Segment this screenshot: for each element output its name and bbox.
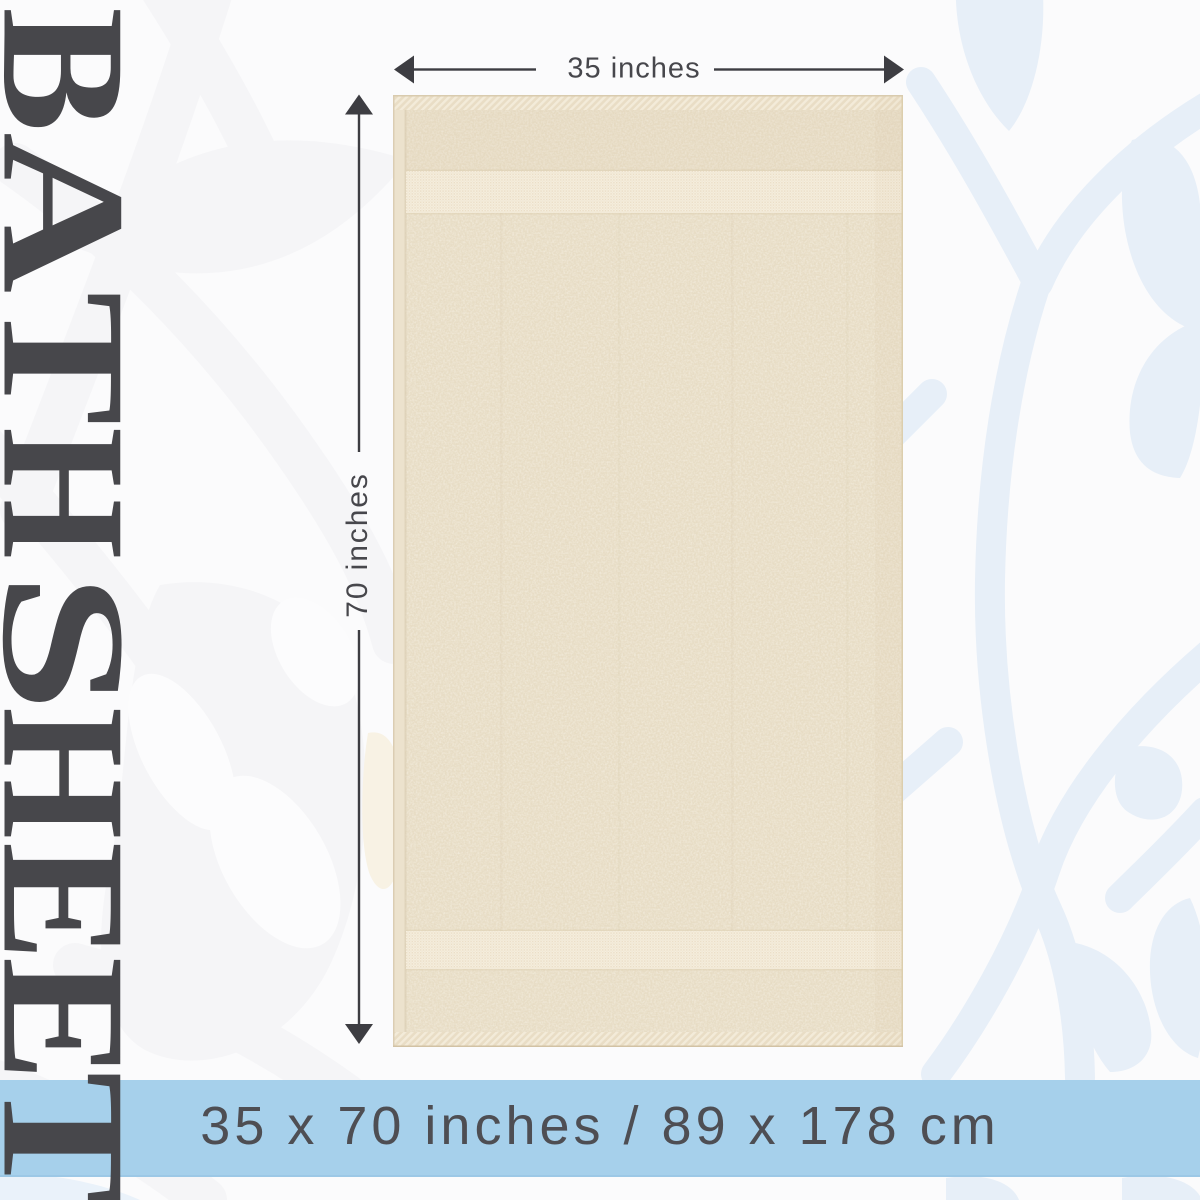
svg-text:T: T [0, 1072, 162, 1200]
svg-text:E: E [0, 842, 161, 961]
svg-text:S: S [0, 572, 161, 713]
svg-text:T: T [0, 292, 162, 426]
svg-text:H: H [0, 707, 163, 839]
svg-text:E: E [0, 957, 161, 1082]
svg-text:A: A [0, 132, 162, 293]
svg-text:B: B [0, 7, 161, 132]
svg-text:H: H [0, 427, 163, 559]
